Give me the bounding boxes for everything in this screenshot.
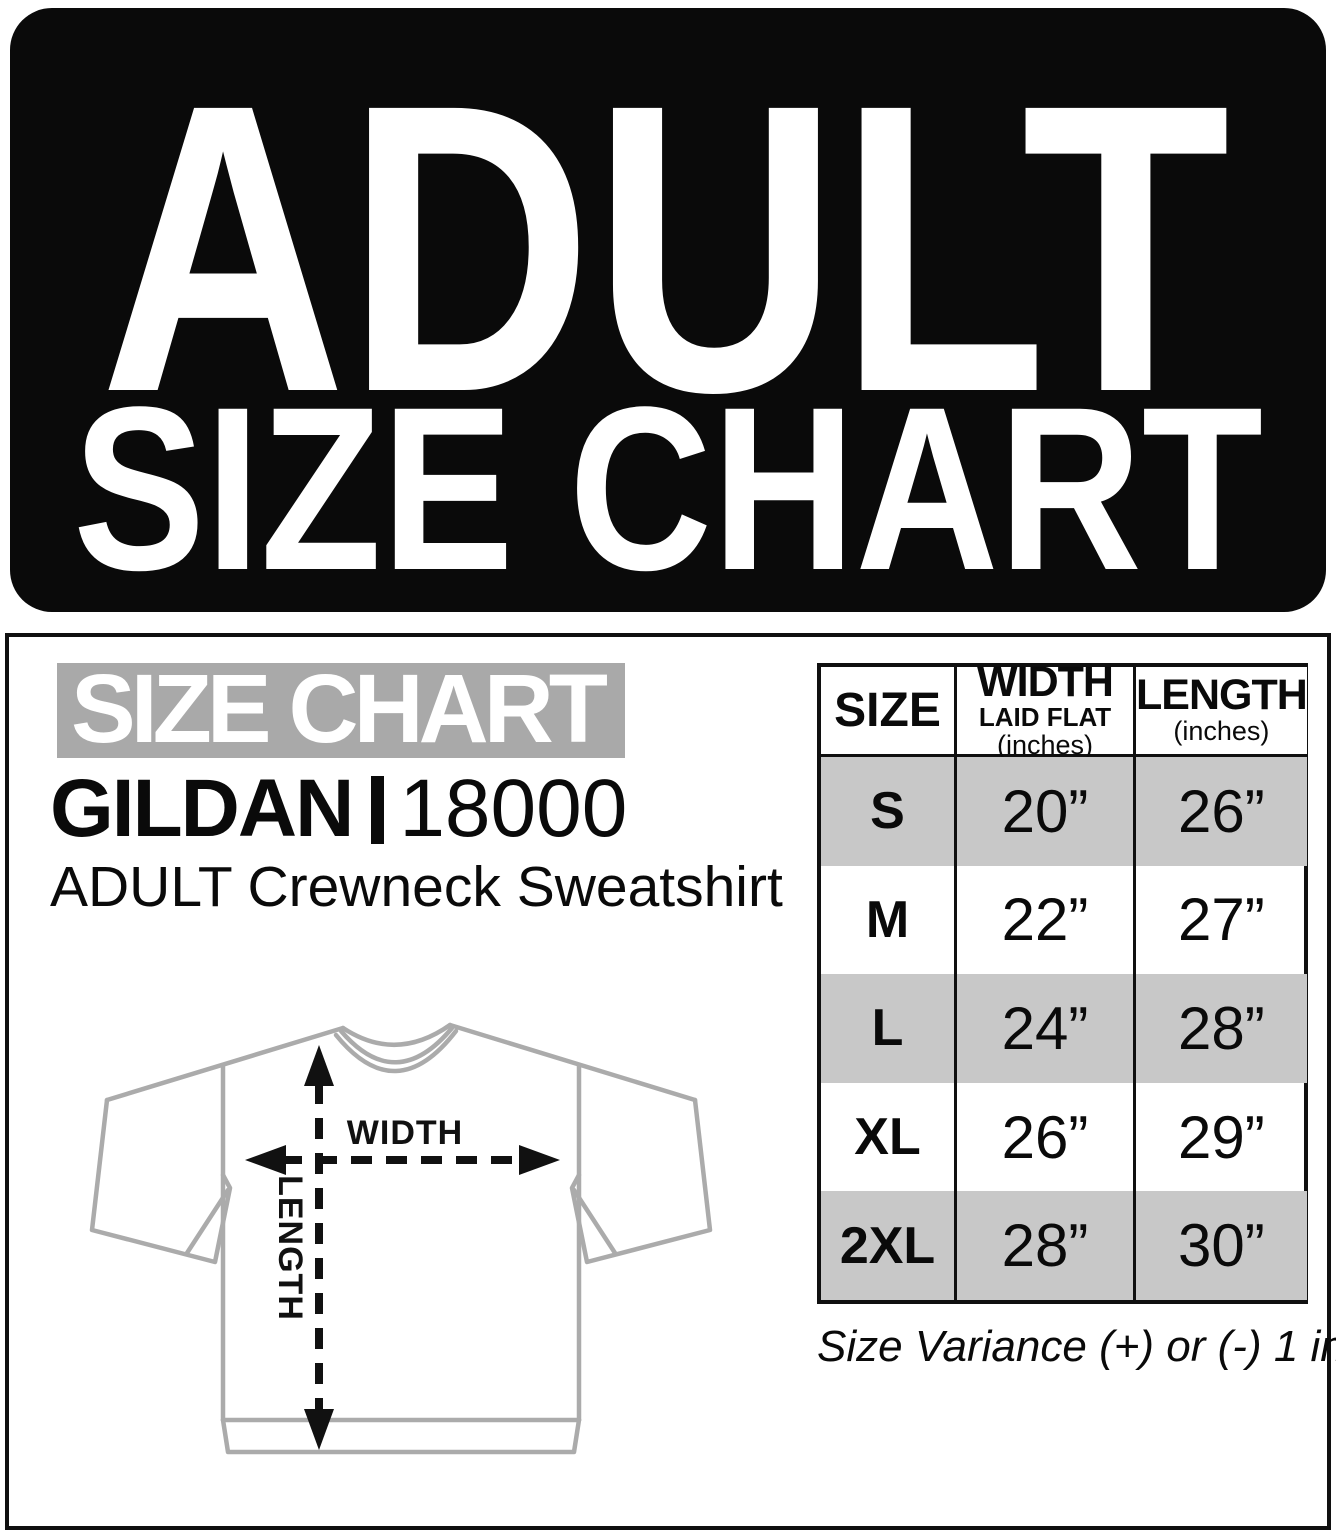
header-size-label: SIZE [834,687,941,735]
style-number: 18000 [399,763,627,854]
row-2xl-width: 28” [954,1191,1133,1300]
header-width: WIDTH LAID FLAT (inches) [954,667,1133,757]
header-length-unit: (inches) [1173,717,1269,747]
row-m-length: 27” [1133,866,1307,975]
header-width-label: WIDTH [977,661,1113,704]
banner-text: ADULT SIZE CHART [10,8,1326,612]
banner: ADULT SIZE CHART [10,8,1326,612]
header-length: LENGTH (inches) [1133,667,1307,757]
length-dimension-label: LENGTH [271,1175,309,1321]
product-name: ADULT Crewneck Sweatshirt [50,854,783,920]
row-l-size: L [821,974,954,1083]
section-label: SIZE CHART [57,663,625,758]
row-xl-length: 29” [1133,1083,1307,1192]
header-length-label: LENGTH [1136,674,1307,717]
brand-line: GILDAN18000 [50,768,627,850]
size-table: SIZE WIDTH LAID FLAT (inches) LENGTH (in… [817,663,1308,1304]
row-2xl-size: 2XL [821,1191,954,1300]
divider-bar [371,776,384,844]
variance-note: Size Variance (+) or (-) 1 inch [817,1322,1308,1372]
brand-name: GILDAN [50,763,352,854]
row-xl-width: 26” [954,1083,1133,1192]
row-l-width: 24” [954,974,1133,1083]
row-2xl-length: 30” [1133,1191,1307,1300]
banner-subtitle: SIZE CHART [73,359,1263,612]
header-size: SIZE [821,667,954,757]
row-s-width: 20” [954,757,1133,866]
row-xl-size: XL [821,1083,954,1192]
sweatshirt-outline [92,1025,710,1452]
row-l-length: 28” [1133,974,1307,1083]
row-s-size: S [821,757,954,866]
adult-size-chart-graphic: ADULT SIZE CHART SIZE CHART GILDAN18000 … [0,0,1336,1536]
header-width-sublabel: LAID FLAT [979,704,1111,731]
row-s-length: 26” [1133,757,1307,866]
width-dimension-label: WIDTH [347,1114,463,1152]
row-m-width: 22” [954,866,1133,975]
sweatshirt-diagram: WIDTH LENGTH [60,1003,760,1473]
section-label-text: SIZE CHART [71,663,603,758]
row-m-size: M [821,866,954,975]
